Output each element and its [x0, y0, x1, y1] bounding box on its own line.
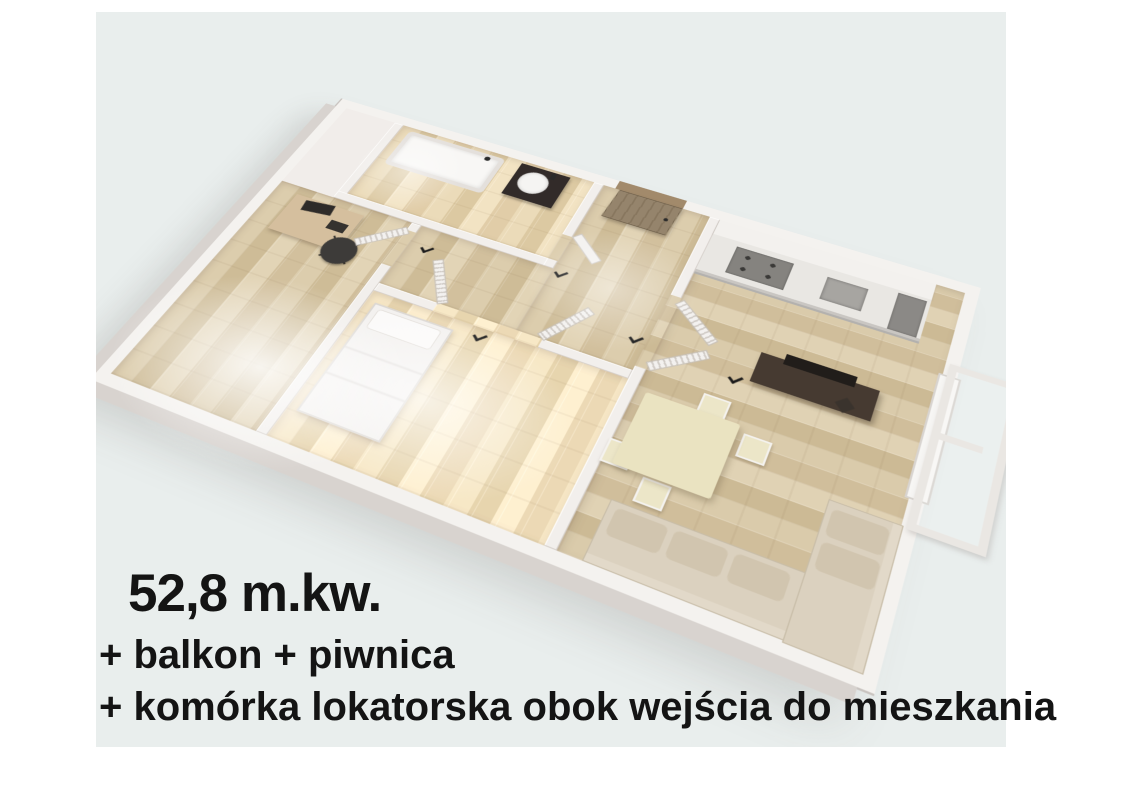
- area-text: 52,8 m.kw.: [128, 566, 381, 622]
- storage-room-text: + komórka lokatorska obok wejścia do mie…: [99, 686, 1056, 728]
- page: 52,8 m.kw. + balkon + piwnica + komórka …: [0, 0, 1128, 800]
- balcony-cellar-text: + balkon + piwnica: [99, 634, 455, 676]
